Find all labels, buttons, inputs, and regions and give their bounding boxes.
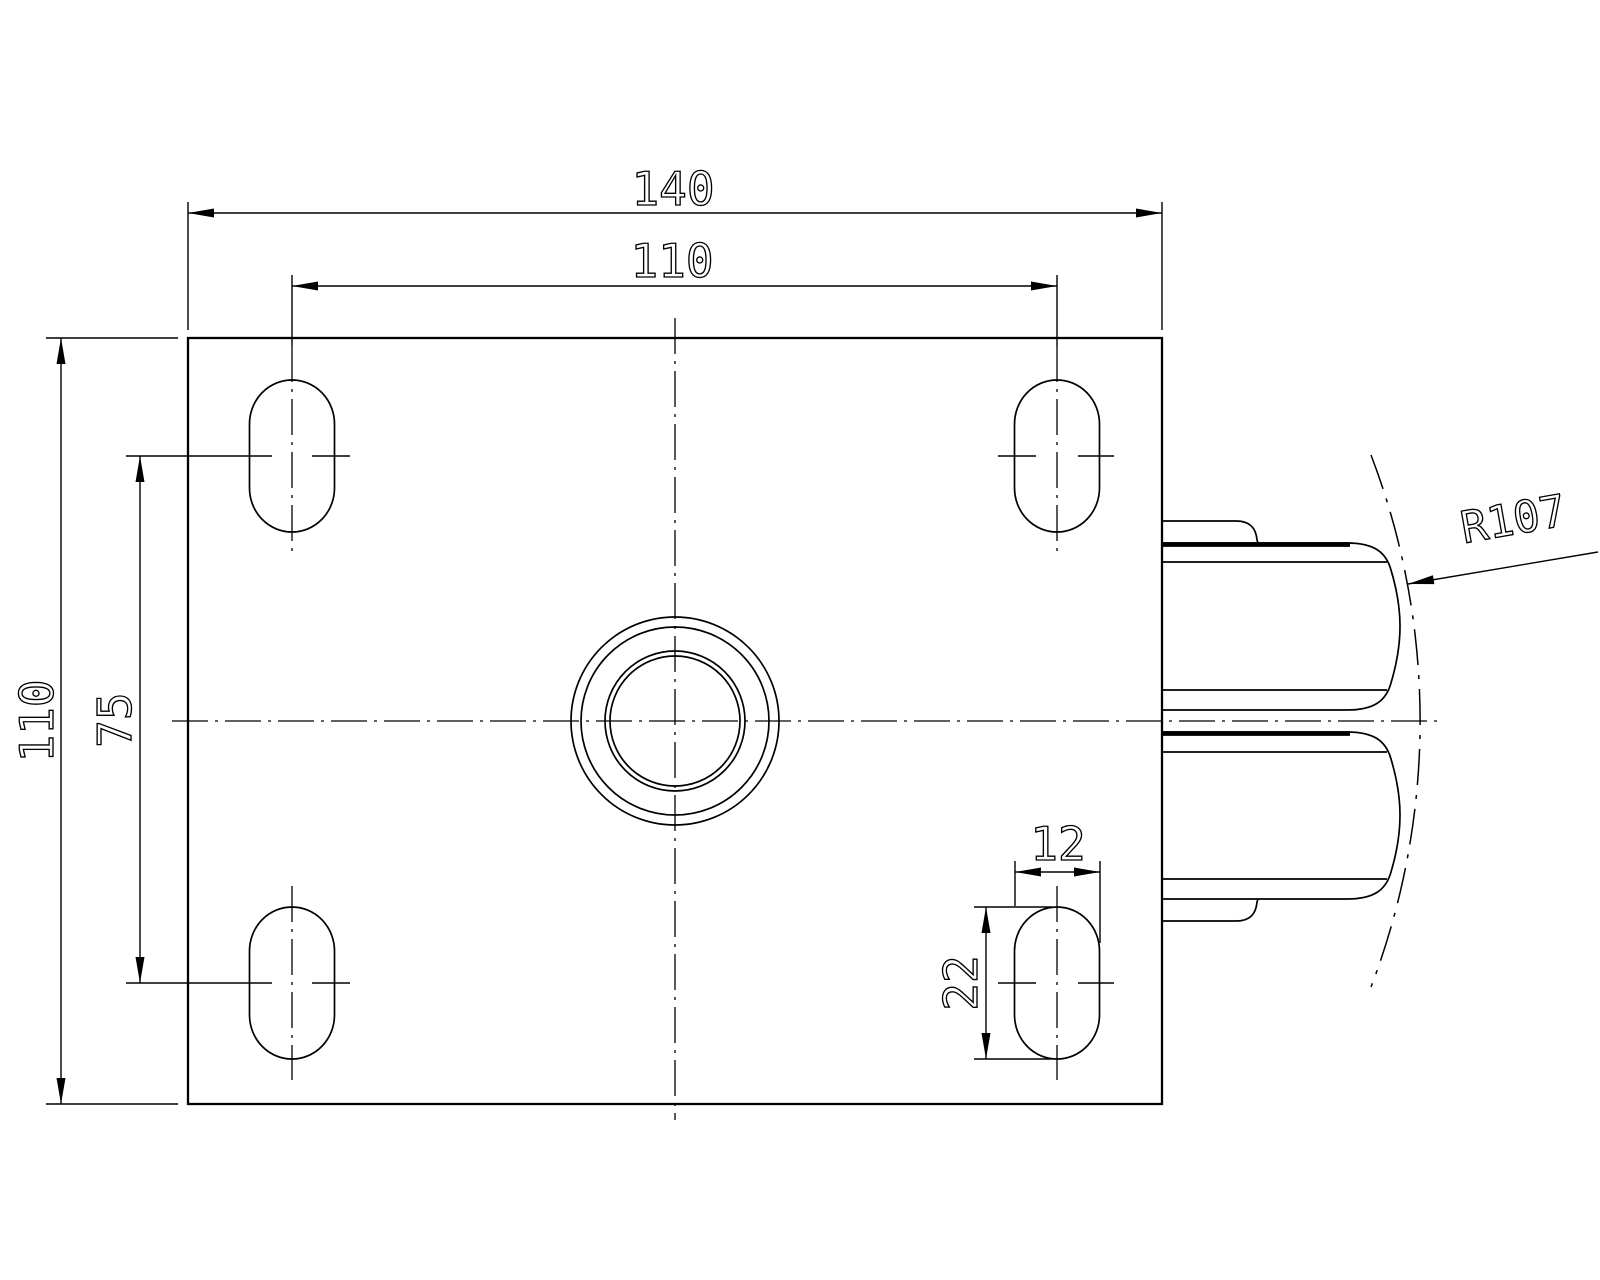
dim-arrow bbox=[1031, 282, 1057, 291]
dim-arrow bbox=[292, 282, 318, 291]
tire-top-outline bbox=[1162, 543, 1400, 710]
dim-arrow bbox=[57, 338, 66, 364]
dim-hole-spacing-width: 110 bbox=[292, 234, 1057, 291]
tire-bottom-outline bbox=[1162, 732, 1400, 899]
tire-top-inner-lines bbox=[1162, 562, 1387, 690]
hub-cap-bottom bbox=[1162, 899, 1258, 921]
caster-plate-top-view: 140 110 110 75 12 22 bbox=[0, 0, 1600, 1280]
dim-slot-width: 12 bbox=[1015, 817, 1100, 943]
dim-arrow bbox=[982, 1033, 991, 1059]
hub-cap-top bbox=[1162, 521, 1258, 543]
tire-bottom-inner-lines bbox=[1162, 752, 1387, 879]
radius-leader-line bbox=[1408, 552, 1598, 584]
cad-drawing-canvas: 140 110 110 75 12 22 bbox=[0, 0, 1600, 1280]
dim-arrow bbox=[1136, 209, 1162, 218]
dim-hole-spacing-depth-label: 75 bbox=[88, 692, 142, 747]
dim-arrow bbox=[136, 456, 145, 482]
dim-slot-length-label: 22 bbox=[934, 955, 988, 1010]
dim-arrow bbox=[136, 957, 145, 983]
dim-wheel-radius-label: R107 bbox=[1457, 485, 1570, 554]
dim-plate-width-label: 140 bbox=[631, 162, 714, 216]
dim-arrow bbox=[982, 907, 991, 933]
dim-plate-depth-label: 110 bbox=[10, 679, 64, 762]
slot-center-ticks bbox=[126, 456, 1114, 983]
dim-hole-spacing-depth: 75 bbox=[88, 456, 145, 983]
dim-wheel-radius: R107 bbox=[1408, 485, 1598, 584]
dim-arrow bbox=[188, 209, 214, 218]
dim-arrow bbox=[1408, 575, 1434, 584]
dim-slot-width-label: 12 bbox=[1030, 817, 1085, 871]
dim-arrow bbox=[57, 1078, 66, 1104]
dim-hole-spacing-width-label: 110 bbox=[630, 234, 713, 288]
